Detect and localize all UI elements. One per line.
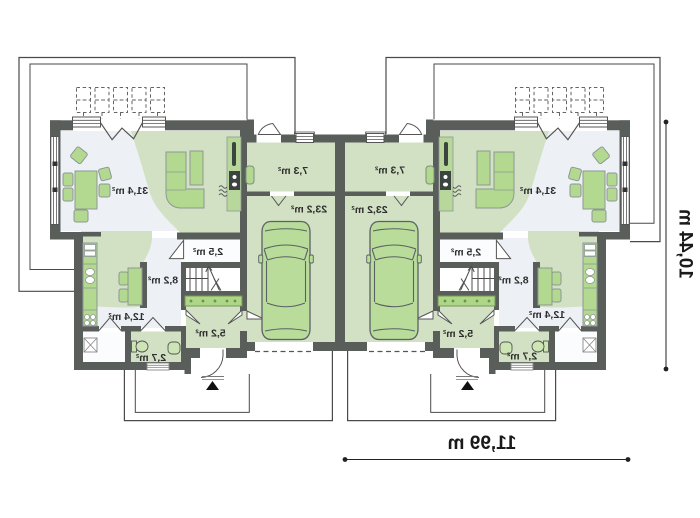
- svg-text:7,3 m²: 7,3 m²: [374, 165, 405, 177]
- svg-text:12,4 m²: 12,4 m²: [528, 309, 565, 321]
- svg-text:8,2 m²: 8,2 m²: [498, 275, 529, 287]
- svg-text:2,5 m²: 2,5 m²: [192, 246, 223, 258]
- svg-text:2,7 m²: 2,7 m²: [506, 351, 537, 363]
- svg-text:2,5 m²: 2,5 m²: [450, 247, 481, 259]
- svg-text:2,7 m²: 2,7 m²: [135, 352, 166, 364]
- svg-text:5,2 m²: 5,2 m²: [442, 328, 473, 340]
- svg-text:5,2 m²: 5,2 m²: [195, 328, 226, 340]
- svg-text:31,4 m²: 31,4 m²: [111, 185, 148, 197]
- svg-text:10,44 m: 10,44 m: [675, 209, 696, 279]
- svg-text:11,99 m: 11,99 m: [448, 433, 517, 454]
- svg-text:31,4 m²: 31,4 m²: [519, 185, 556, 197]
- svg-text:12,4 m²: 12,4 m²: [108, 311, 145, 323]
- svg-text:7,3 m²: 7,3 m²: [277, 165, 308, 177]
- svg-text:23,2 m²: 23,2 m²: [351, 204, 388, 216]
- svg-text:8,2 m²: 8,2 m²: [147, 275, 178, 287]
- svg-text:23,2 m²: 23,2 m²: [290, 204, 327, 216]
